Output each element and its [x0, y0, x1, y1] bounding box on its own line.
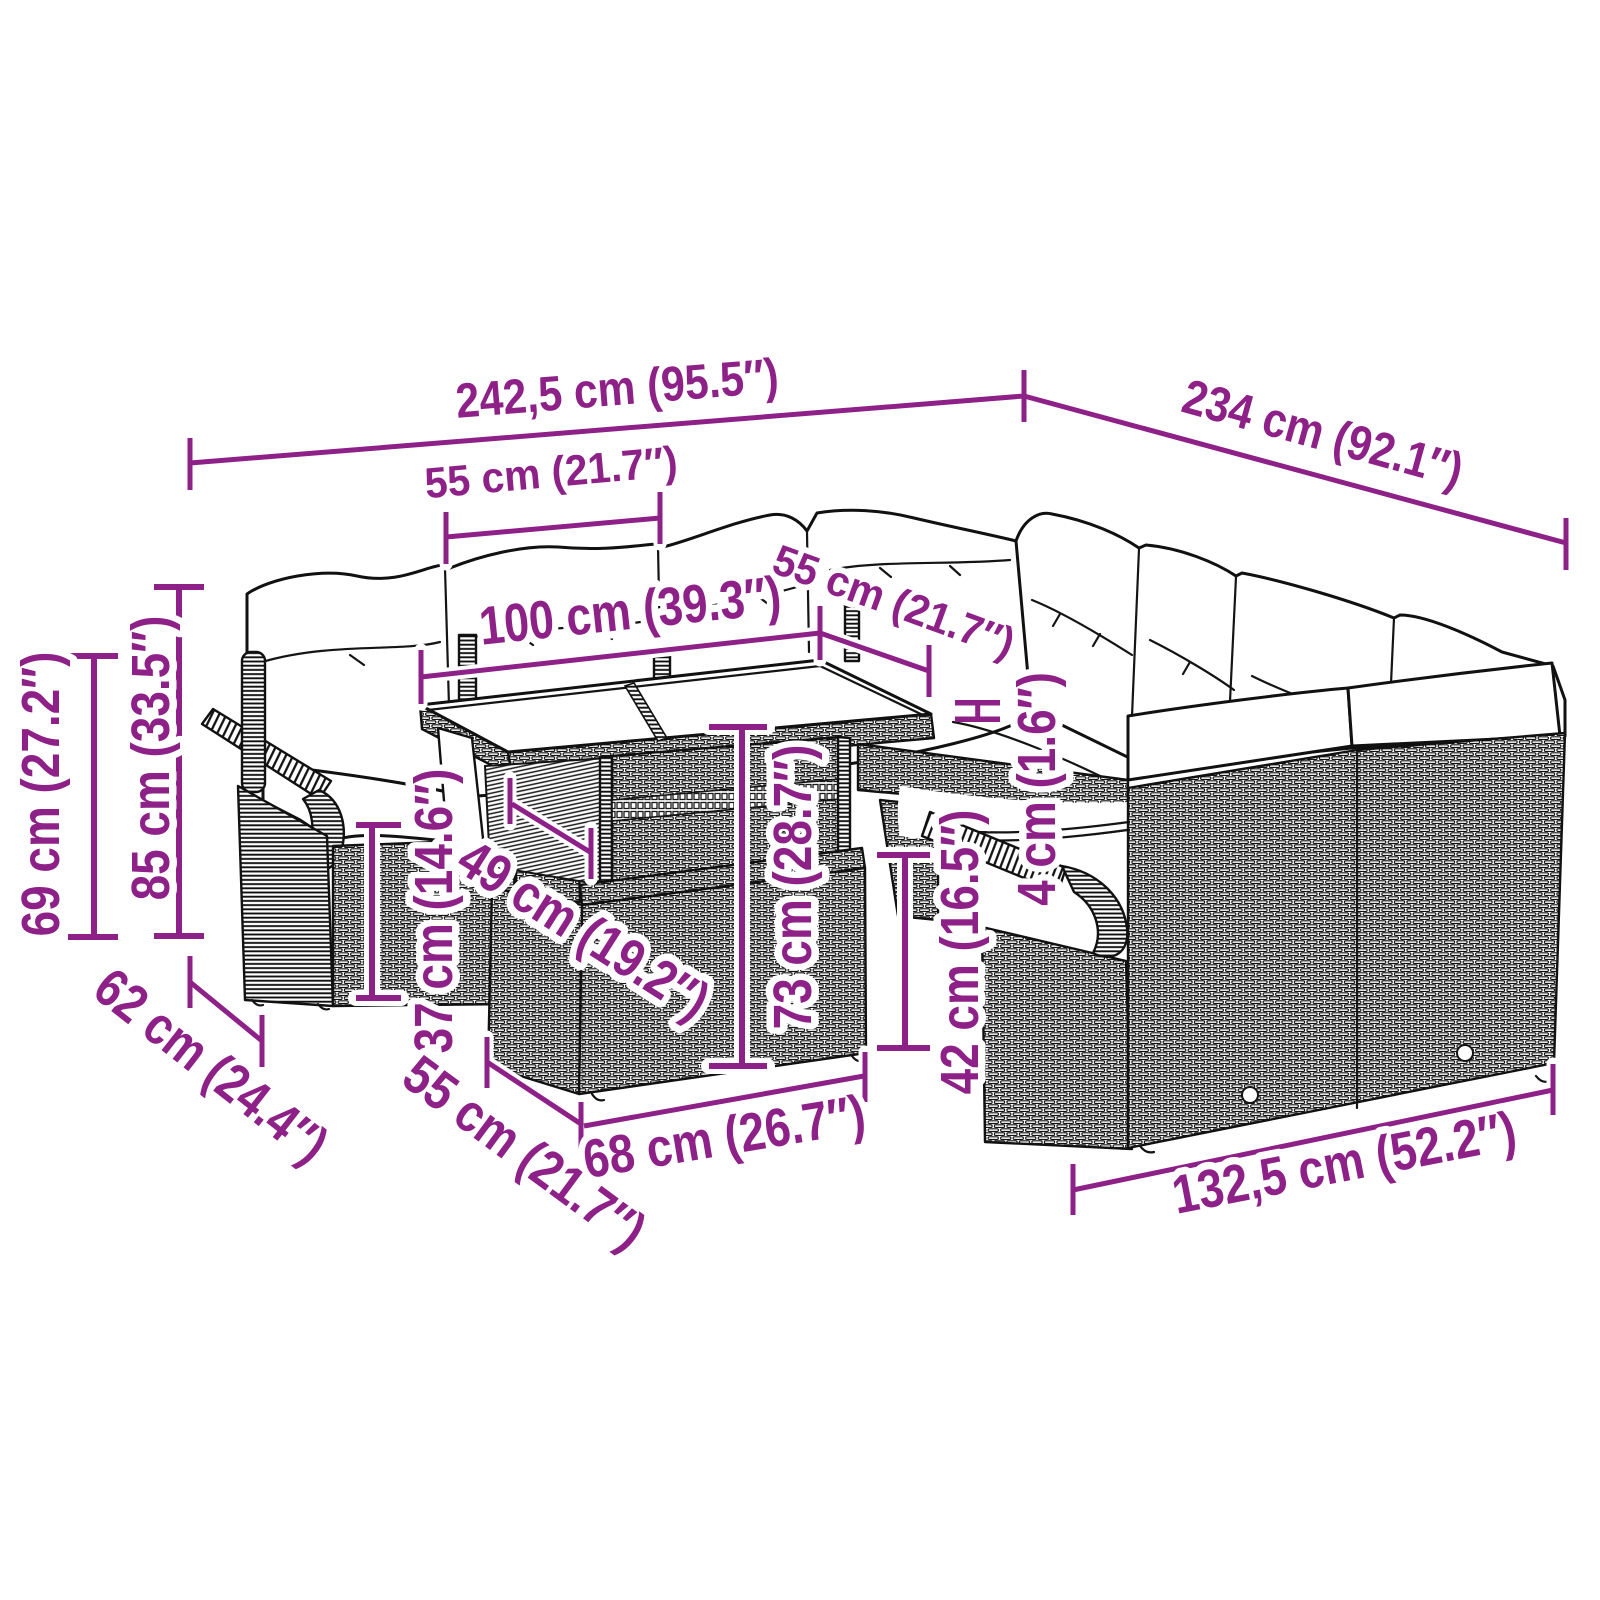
svg-text:85 cm (33.5″): 85 cm (33.5″)	[121, 616, 181, 901]
svg-text:4 cm (1.6″): 4 cm (1.6″)	[1007, 672, 1067, 906]
svg-text:73 cm (28.7″): 73 cm (28.7″)	[763, 745, 823, 1030]
svg-text:37 cm (14.6″): 37 cm (14.6″)	[404, 769, 464, 1054]
svg-text:42 cm (16.5″): 42 cm (16.5″)	[930, 810, 990, 1095]
svg-text:69 cm (27.2″): 69 cm (27.2″)	[11, 652, 71, 937]
